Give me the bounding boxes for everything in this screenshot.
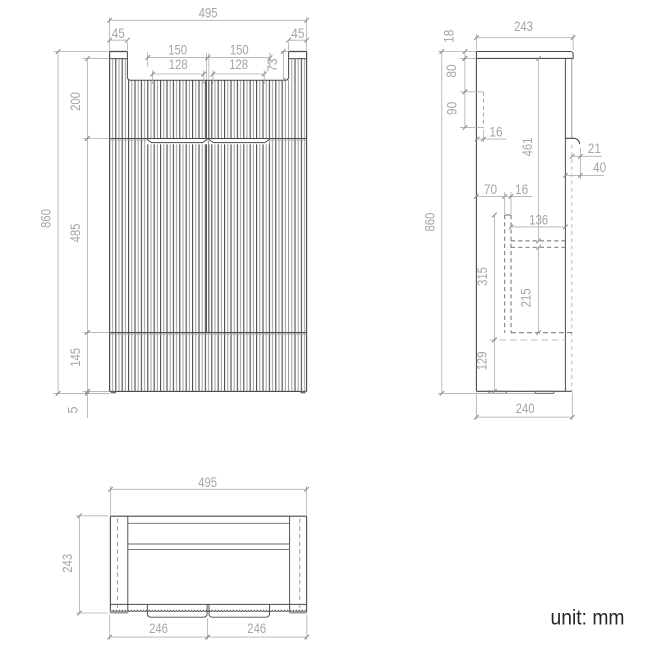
svg-text:860: 860 bbox=[421, 213, 437, 232]
svg-text:136: 136 bbox=[529, 212, 548, 228]
svg-text:485: 485 bbox=[67, 223, 83, 242]
svg-text:246: 246 bbox=[149, 620, 168, 636]
svg-text:495: 495 bbox=[198, 474, 217, 490]
svg-text:129: 129 bbox=[474, 351, 490, 370]
svg-text:246: 246 bbox=[247, 620, 266, 636]
svg-text:145: 145 bbox=[67, 348, 83, 367]
svg-text:73: 73 bbox=[264, 58, 280, 71]
svg-text:5: 5 bbox=[65, 406, 81, 413]
svg-text:243: 243 bbox=[59, 554, 75, 573]
svg-text:16: 16 bbox=[489, 123, 502, 139]
svg-text:21: 21 bbox=[588, 140, 601, 156]
svg-text:18: 18 bbox=[440, 30, 456, 43]
svg-text:150: 150 bbox=[168, 42, 187, 58]
svg-text:45: 45 bbox=[112, 25, 125, 41]
svg-text:128: 128 bbox=[169, 56, 188, 72]
svg-text:215: 215 bbox=[518, 288, 534, 307]
svg-text:240: 240 bbox=[516, 400, 535, 416]
svg-text:16: 16 bbox=[515, 181, 528, 197]
svg-text:461: 461 bbox=[519, 137, 535, 156]
svg-text:128: 128 bbox=[229, 56, 248, 72]
svg-text:495: 495 bbox=[199, 5, 218, 21]
svg-text:40: 40 bbox=[593, 159, 606, 175]
svg-text:70: 70 bbox=[484, 181, 497, 197]
svg-text:90: 90 bbox=[444, 102, 460, 115]
svg-text:200: 200 bbox=[67, 92, 83, 111]
svg-text:315: 315 bbox=[474, 267, 490, 286]
svg-text:860: 860 bbox=[38, 209, 54, 228]
svg-text:80: 80 bbox=[443, 64, 459, 77]
svg-text:45: 45 bbox=[291, 25, 304, 41]
svg-text:243: 243 bbox=[514, 18, 533, 34]
svg-text:150: 150 bbox=[230, 42, 249, 58]
svg-text:unit: mm: unit: mm bbox=[551, 606, 625, 630]
